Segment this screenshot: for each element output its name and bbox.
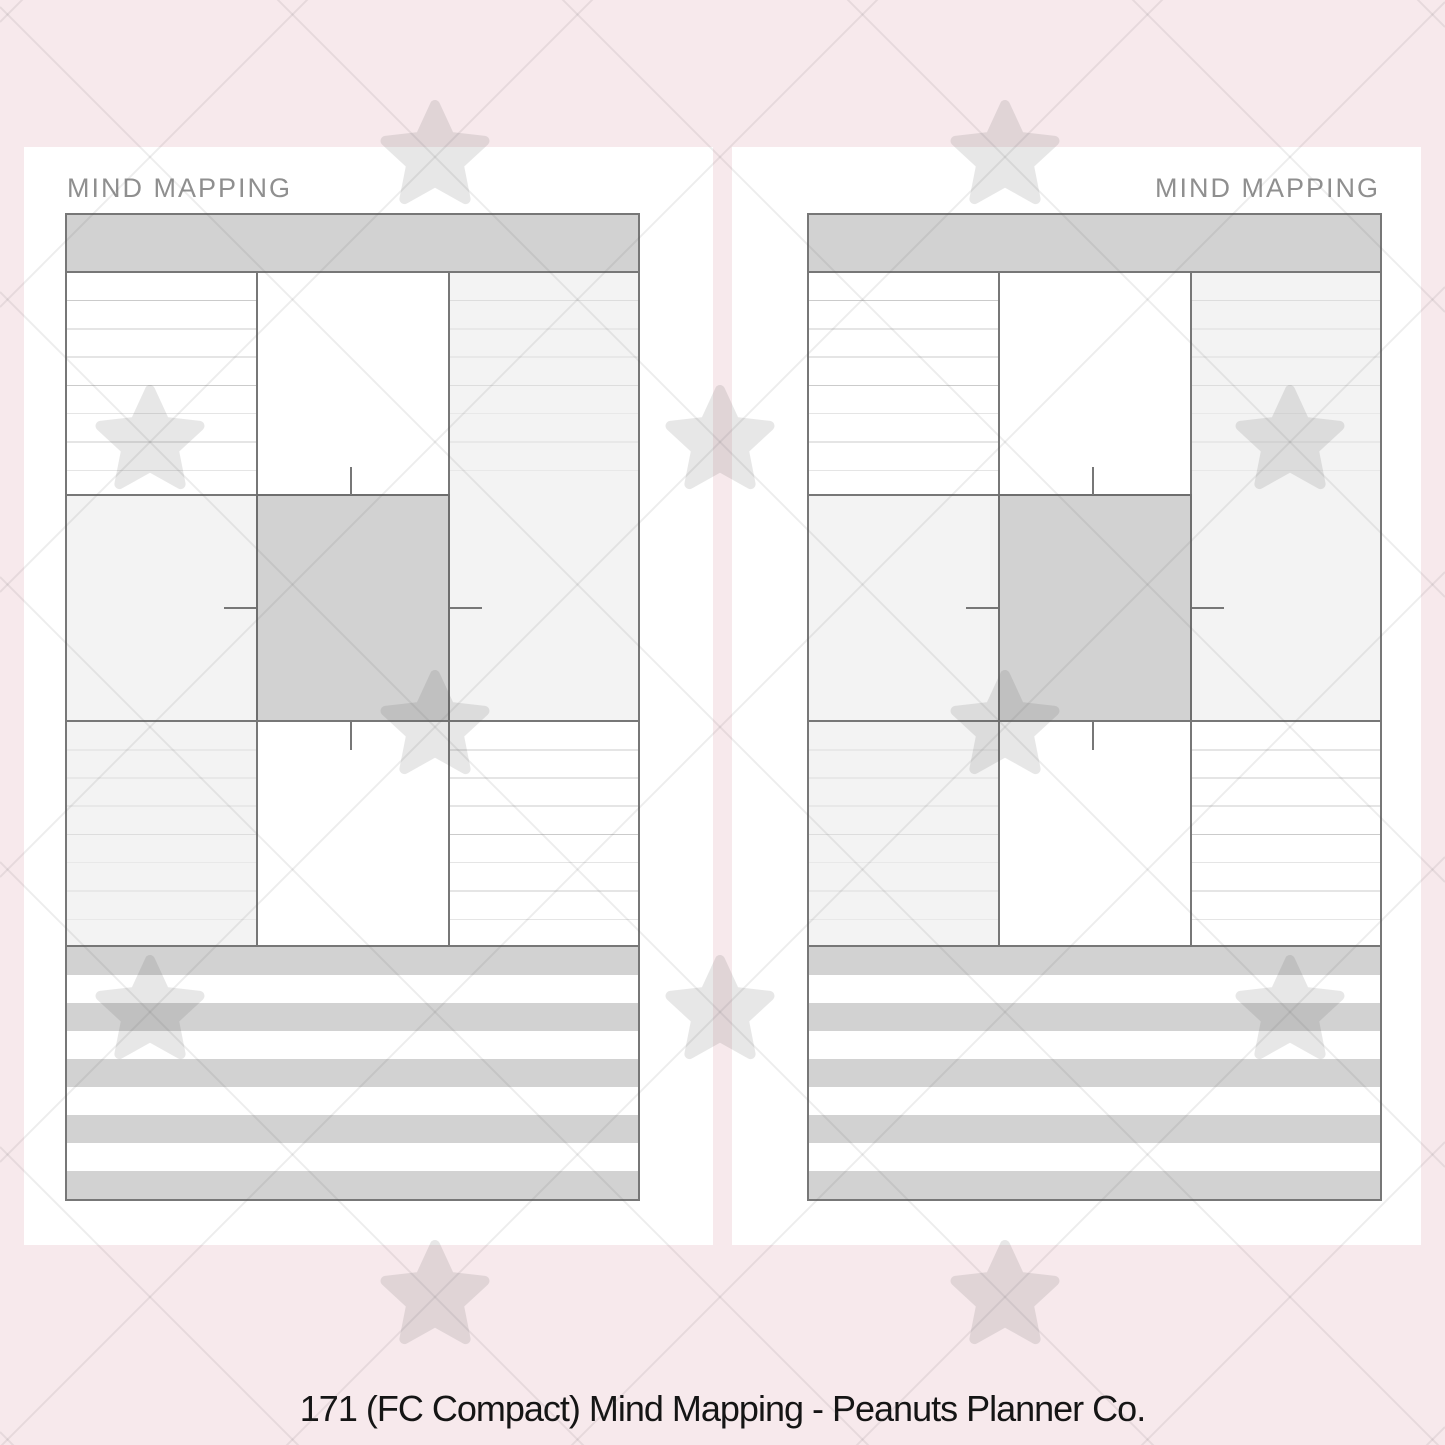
connector-tick-left: [966, 607, 998, 609]
branch-cell-blank: [256, 722, 450, 945]
connector-tick-bottom: [1092, 722, 1094, 750]
ruled-stripes-section: [67, 947, 638, 1199]
connector-tick-right: [450, 607, 482, 609]
title-header-bar: [67, 215, 638, 273]
star-icon: [386, 1245, 485, 1339]
connector-tick-right: [1192, 607, 1224, 609]
central-topic-box: [256, 494, 450, 722]
notes-cell-ruled-gray: [809, 722, 998, 945]
branch-cell-blank: [998, 273, 1192, 496]
notes-cell-ruled-gray: [450, 273, 638, 496]
notes-cell-ruled: [67, 273, 256, 496]
connector-tick-left: [224, 607, 256, 609]
notes-cell-ruled-gray: [1192, 273, 1380, 496]
planner-page-left: MIND MAPPING: [24, 147, 713, 1245]
product-caption: 171 (FC Compact) Mind Mapping - Peanuts …: [0, 1388, 1445, 1430]
page-title: MIND MAPPING: [1155, 173, 1380, 204]
connector-tick-top: [350, 467, 352, 495]
connector-tick-top: [1092, 467, 1094, 495]
branch-cell-blank: [998, 722, 1192, 945]
mind-map-grid: [807, 213, 1382, 1201]
product-image-background: MIND MAPPING MIND MAPPING: [0, 0, 1445, 1445]
branch-cell-blank: [256, 273, 450, 496]
mind-map-grid: [65, 213, 640, 1201]
star-icon: [956, 1245, 1055, 1339]
page-title: MIND MAPPING: [67, 173, 292, 204]
notes-cell-ruled: [809, 273, 998, 496]
planner-page-right: MIND MAPPING: [732, 147, 1421, 1245]
connector-tick-bottom: [350, 722, 352, 750]
notes-cell-ruled: [1192, 722, 1380, 945]
notes-cell-ruled-gray: [67, 722, 256, 945]
title-header-bar: [809, 215, 1380, 273]
notes-cell-ruled: [450, 722, 638, 945]
ruled-stripes-section: [809, 947, 1380, 1199]
central-topic-box: [998, 494, 1192, 722]
